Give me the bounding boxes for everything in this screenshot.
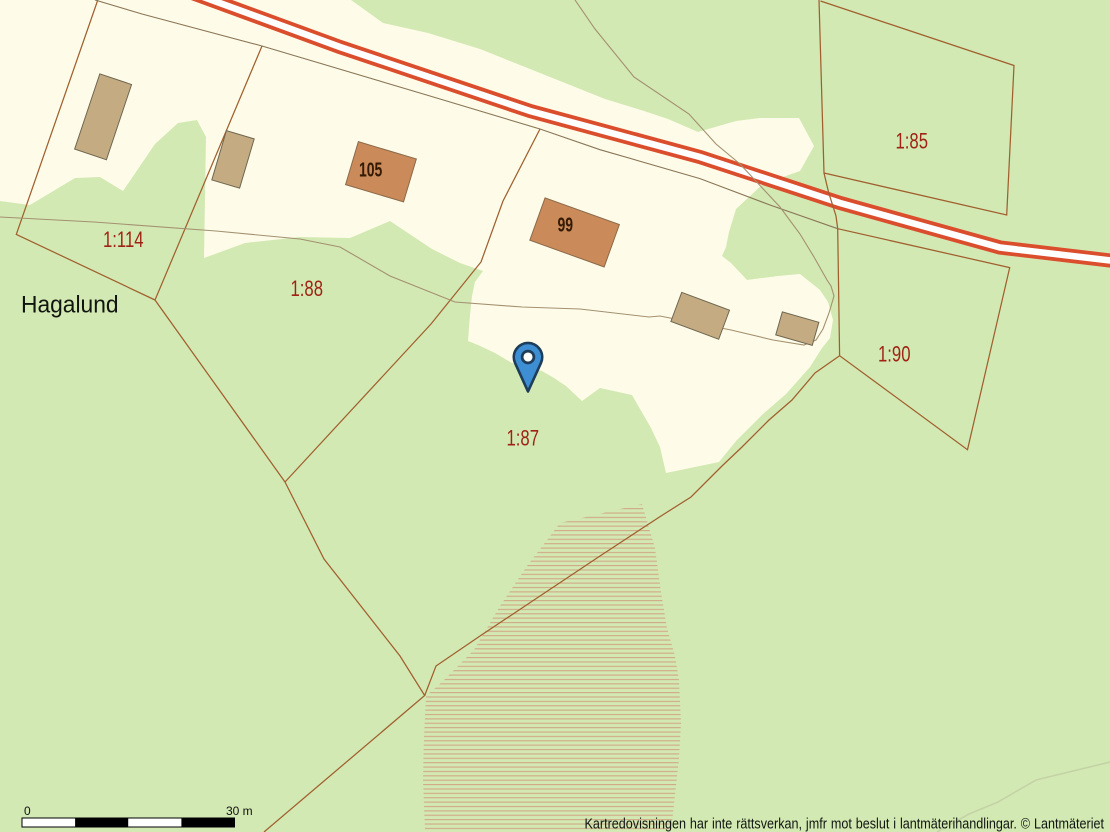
svg-text:105: 105 (359, 158, 383, 181)
svg-text:99: 99 (558, 213, 574, 236)
svg-text:1:87: 1:87 (507, 426, 540, 451)
svg-text:1:90: 1:90 (878, 342, 911, 367)
svg-text:1:114: 1:114 (103, 228, 144, 253)
svg-text:30 m: 30 m (226, 804, 253, 818)
svg-text:1:88: 1:88 (291, 277, 324, 302)
svg-text:Hagalund: Hagalund (21, 291, 119, 318)
svg-text:1:85: 1:85 (896, 129, 929, 154)
svg-text:0: 0 (24, 804, 31, 818)
svg-text:Kartredovisningen har inte rät: Kartredovisningen har inte rättsverkan, … (584, 814, 1104, 831)
